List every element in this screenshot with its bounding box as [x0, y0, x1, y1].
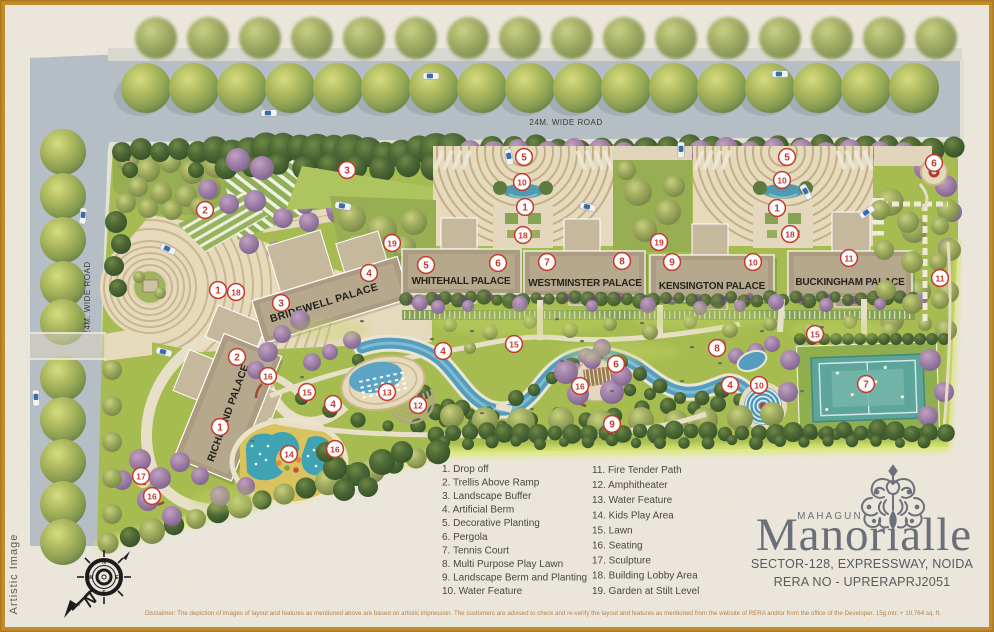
- svg-text:13: 13: [382, 387, 392, 397]
- svg-text:4: 4: [366, 268, 372, 279]
- svg-text:W: W: [89, 575, 94, 581]
- svg-text:8: 8: [714, 343, 720, 354]
- svg-text:1: 1: [217, 422, 223, 433]
- svg-text:WESTMINSTER PALACE: WESTMINSTER PALACE: [528, 278, 642, 289]
- svg-text:16. Seating: 16. Seating: [592, 541, 643, 552]
- svg-text:SECTOR-128, EXPRESSWAY, NOIDA: SECTOR-128, EXPRESSWAY, NOIDA: [751, 557, 974, 571]
- svg-text:18: 18: [231, 287, 241, 297]
- svg-text:11. Fire Tender Path: 11. Fire Tender Path: [592, 465, 682, 476]
- svg-text:1. Drop off: 1. Drop off: [442, 464, 489, 475]
- svg-text:9. Landscape Berm and Planting: 9. Landscape Berm and Planting: [442, 572, 587, 583]
- svg-text:Manorialle: Manorialle: [756, 509, 972, 561]
- svg-text:WHITEHALL PALACE: WHITEHALL PALACE: [412, 276, 511, 287]
- svg-text:13. Water Feature: 13. Water Feature: [592, 495, 673, 506]
- svg-text:10: 10: [517, 177, 527, 187]
- svg-text:18. Building Lobby Area: 18. Building Lobby Area: [592, 571, 698, 582]
- svg-text:2: 2: [234, 352, 240, 363]
- svg-text:16: 16: [330, 444, 340, 454]
- svg-text:11: 11: [845, 253, 854, 263]
- svg-text:1: 1: [215, 285, 221, 296]
- svg-text:KENSINGTON PALACE: KENSINGTON PALACE: [659, 281, 766, 292]
- svg-text:4: 4: [727, 380, 733, 391]
- svg-text:19: 19: [387, 238, 397, 248]
- svg-text:12: 12: [413, 400, 423, 410]
- svg-text:15: 15: [509, 339, 519, 349]
- svg-text:17. Sculpture: 17. Sculpture: [592, 556, 651, 567]
- svg-text:1: 1: [522, 202, 528, 213]
- svg-text:8: 8: [619, 256, 625, 267]
- svg-text:4: 4: [440, 346, 446, 357]
- svg-text:7: 7: [544, 257, 550, 268]
- svg-text:18: 18: [518, 230, 528, 240]
- svg-text:16: 16: [575, 381, 585, 391]
- svg-text:15: 15: [302, 387, 312, 397]
- svg-text:12. Amphitheater: 12. Amphitheater: [592, 480, 668, 491]
- svg-text:7: 7: [863, 379, 869, 390]
- svg-text:RERA NO - UPRERAPRJ2051: RERA NO - UPRERAPRJ2051: [774, 575, 951, 589]
- svg-text:19: 19: [654, 237, 664, 247]
- svg-text:10: 10: [777, 175, 787, 185]
- svg-text:3. Landscape Buffer: 3. Landscape Buffer: [442, 491, 532, 502]
- svg-text:9: 9: [609, 419, 615, 430]
- svg-text:8. Multi Purpose Play Lawn: 8. Multi Purpose Play Lawn: [442, 559, 563, 570]
- svg-text:6: 6: [931, 158, 937, 169]
- svg-text:7. Tennis Court: 7. Tennis Court: [442, 545, 509, 556]
- svg-text:15. Lawn: 15. Lawn: [592, 525, 633, 536]
- svg-text:9: 9: [669, 257, 675, 268]
- svg-text:N: N: [102, 560, 106, 566]
- svg-text:10: 10: [754, 380, 764, 390]
- svg-text:6. Pergola: 6. Pergola: [442, 532, 488, 543]
- svg-text:14: 14: [284, 449, 294, 459]
- svg-text:10: 10: [748, 257, 758, 267]
- svg-text:3: 3: [278, 298, 284, 309]
- svg-text:11: 11: [936, 273, 945, 283]
- svg-text:2: 2: [202, 205, 208, 216]
- svg-text:6: 6: [495, 258, 501, 269]
- svg-text:5: 5: [784, 152, 790, 163]
- svg-text:16: 16: [147, 491, 157, 501]
- svg-text:18: 18: [785, 229, 795, 239]
- svg-text:5: 5: [521, 152, 527, 163]
- svg-text:1: 1: [774, 203, 780, 214]
- svg-text:3: 3: [344, 165, 350, 176]
- svg-text:2. Trellis Above Ramp: 2. Trellis Above Ramp: [442, 478, 540, 489]
- svg-text:19. Garden at Stilt Level: 19. Garden at Stilt Level: [592, 586, 699, 597]
- svg-text:24M. WIDE ROAD: 24M. WIDE ROAD: [529, 118, 602, 127]
- svg-text:Disclaimer: The depiction of i: Disclaimer: The depiction of images of l…: [145, 610, 941, 617]
- svg-text:5. Decorative Planting: 5. Decorative Planting: [442, 518, 540, 529]
- svg-text:4: 4: [330, 399, 336, 410]
- svg-text:14. Kids Play Area: 14. Kids Play Area: [592, 510, 674, 521]
- svg-text:6: 6: [613, 359, 619, 370]
- svg-text:15: 15: [810, 329, 820, 339]
- svg-text:Artistic Image: Artistic Image: [8, 534, 20, 615]
- svg-text:5: 5: [423, 260, 429, 271]
- svg-text:24M. WIDE ROAD: 24M. WIDE ROAD: [83, 261, 92, 334]
- svg-text:16: 16: [263, 371, 273, 381]
- svg-text:10. Water Feature: 10. Water Feature: [442, 586, 523, 597]
- svg-text:4. Artificial Berm: 4. Artificial Berm: [442, 505, 514, 516]
- svg-text:17: 17: [136, 471, 146, 481]
